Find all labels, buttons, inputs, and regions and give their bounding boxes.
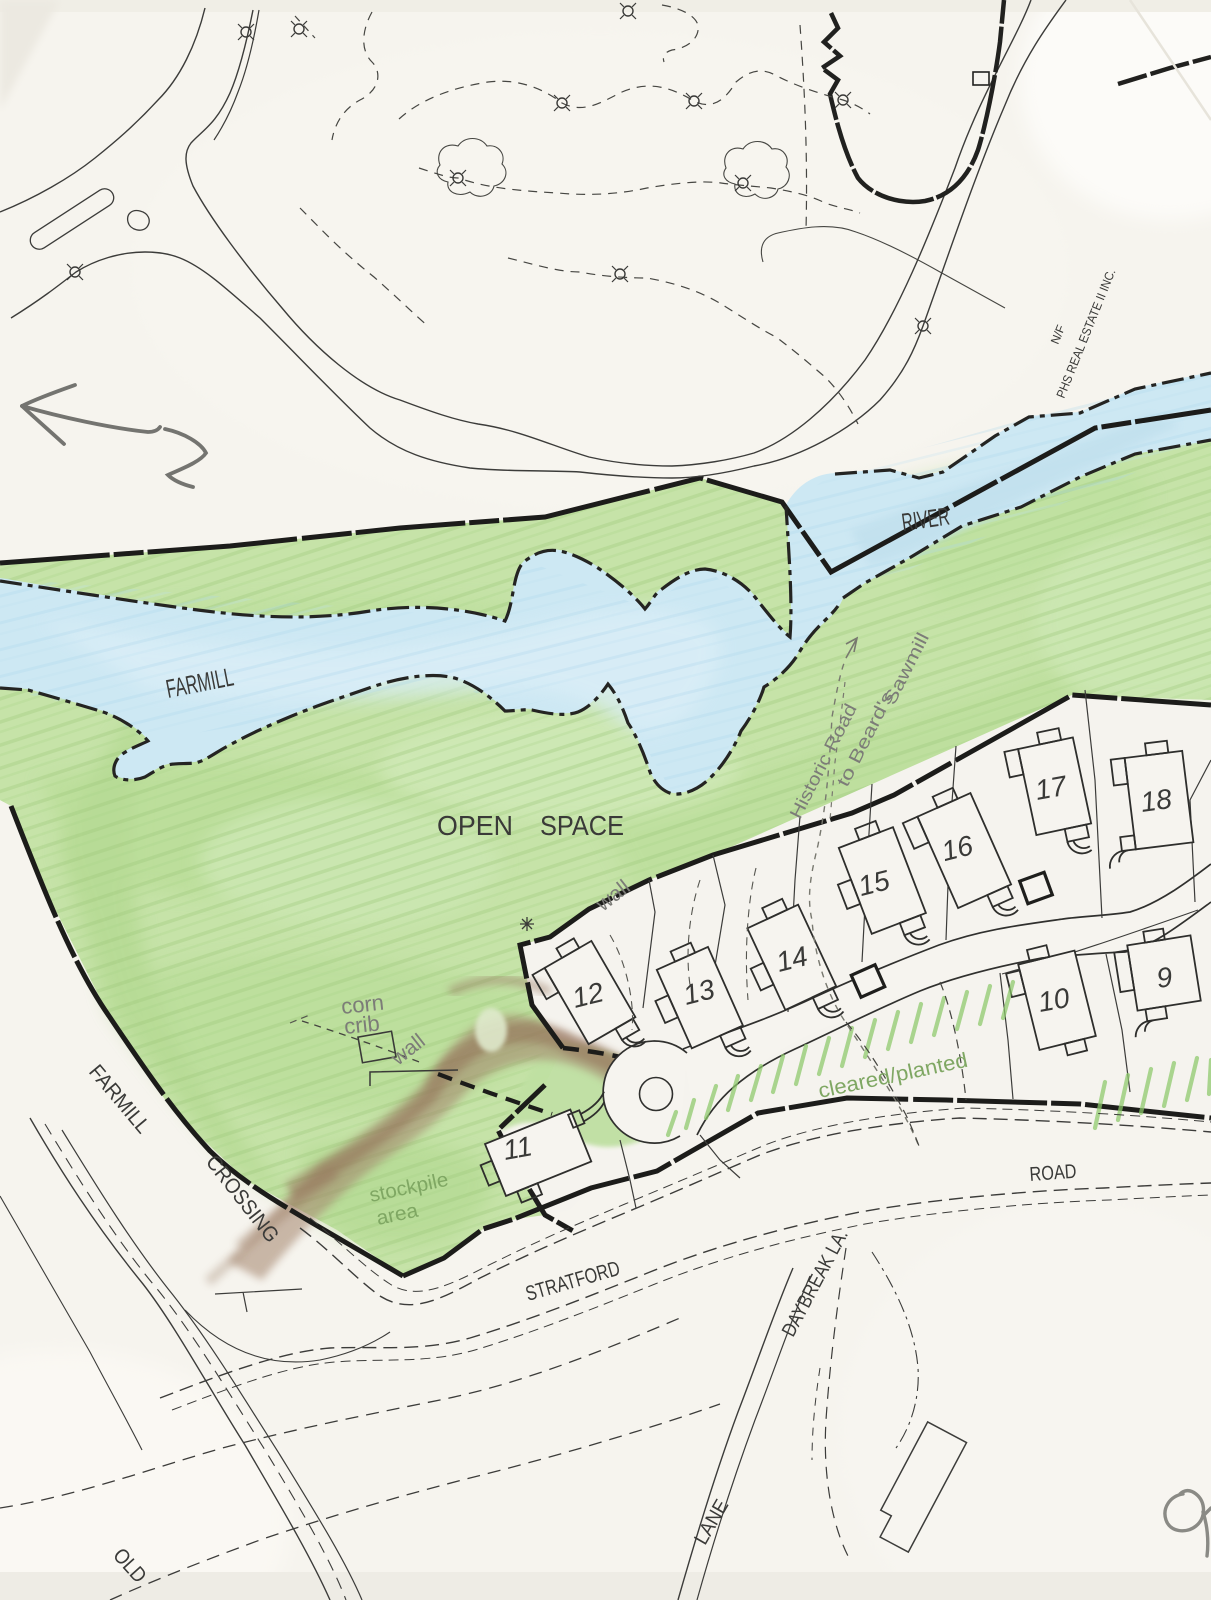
svg-text:SPACE: SPACE bbox=[540, 810, 624, 841]
svg-text:10: 10 bbox=[1036, 982, 1072, 1018]
svg-text:ROAD: ROAD bbox=[1029, 1161, 1077, 1186]
svg-text:11: 11 bbox=[501, 1130, 535, 1166]
svg-text:OPEN: OPEN bbox=[437, 810, 513, 841]
svg-text:18: 18 bbox=[1139, 783, 1175, 818]
svg-text:crib: crib bbox=[343, 1010, 381, 1039]
